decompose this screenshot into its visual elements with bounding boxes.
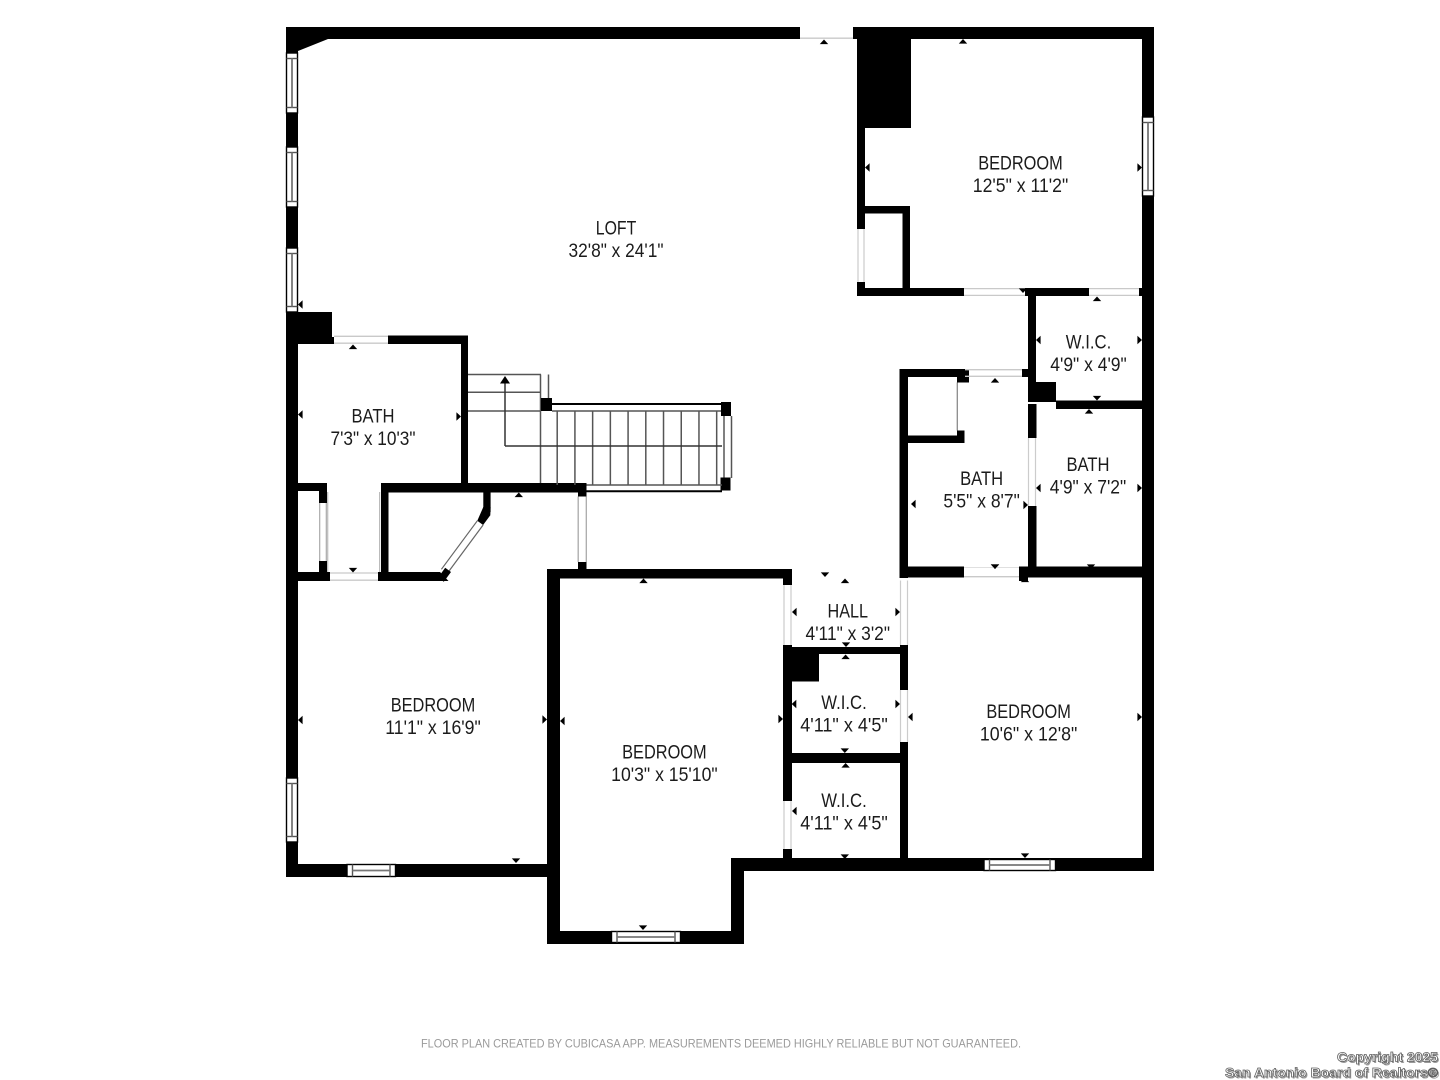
svg-text:4'11" x 4'5": 4'11" x 4'5" (800, 814, 888, 835)
svg-text:San Antonio Board of Realtors®: San Antonio Board of Realtors® (1225, 1065, 1438, 1080)
svg-text:BATH: BATH (1067, 455, 1110, 476)
svg-text:4'11" x 3'2": 4'11" x 3'2" (806, 624, 891, 645)
svg-text:BEDROOM: BEDROOM (986, 702, 1071, 723)
svg-text:11'1" x 16'9": 11'1" x 16'9" (385, 718, 481, 739)
svg-text:BATH: BATH (352, 407, 395, 428)
svg-text:12'5" x 11'2": 12'5" x 11'2" (973, 176, 1069, 197)
svg-text:HALL: HALL (828, 601, 869, 622)
svg-text:W.I.C.: W.I.C. (821, 791, 867, 812)
svg-text:LOFT: LOFT (596, 219, 637, 240)
svg-text:FLOOR PLAN CREATED BY CUBICASA: FLOOR PLAN CREATED BY CUBICASA APP. MEAS… (421, 1037, 1021, 1051)
svg-text:5'5" x 8'7": 5'5" x 8'7" (943, 492, 1020, 513)
svg-text:BEDROOM: BEDROOM (622, 743, 707, 764)
svg-text:4'9" x 7'2": 4'9" x 7'2" (1050, 478, 1127, 499)
svg-text:10'6" x 12'8": 10'6" x 12'8" (980, 725, 1078, 746)
svg-text:32'8" x 24'1": 32'8" x 24'1" (569, 241, 664, 262)
svg-text:10'3" x 15'10": 10'3" x 15'10" (611, 765, 718, 786)
svg-text:7'3" x 10'3": 7'3" x 10'3" (331, 429, 416, 450)
svg-text:W.I.C.: W.I.C. (1066, 332, 1112, 353)
svg-text:W.I.C.: W.I.C. (821, 693, 867, 714)
svg-text:BEDROOM: BEDROOM (391, 696, 476, 717)
svg-text:BATH: BATH (960, 469, 1003, 490)
svg-text:4'9" x 4'9": 4'9" x 4'9" (1050, 355, 1127, 376)
svg-text:4'11" x 4'5": 4'11" x 4'5" (800, 716, 888, 737)
svg-text:BEDROOM: BEDROOM (978, 154, 1063, 175)
svg-text:Copyright 2025: Copyright 2025 (1337, 1050, 1438, 1065)
